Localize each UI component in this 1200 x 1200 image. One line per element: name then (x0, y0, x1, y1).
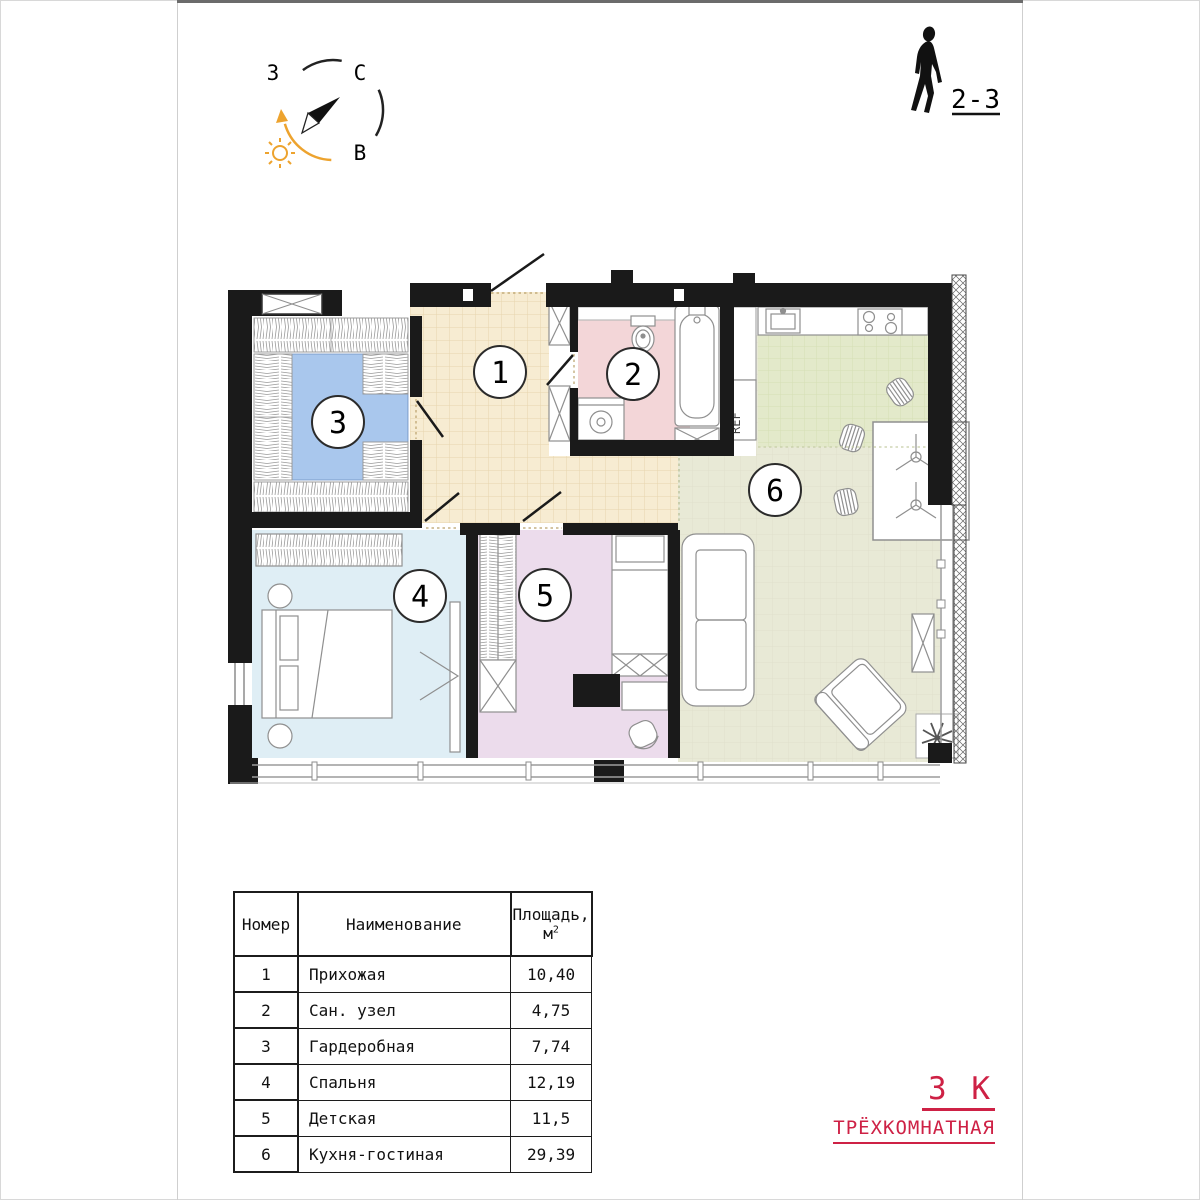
cell-area: 11,5 (511, 1100, 592, 1136)
cell-number: 5 (234, 1100, 298, 1136)
cell-number: 2 (234, 992, 298, 1028)
compass-north-label: С (354, 61, 367, 85)
sheet-top-edge (177, 0, 1023, 3)
cell-area: 10,40 (511, 956, 592, 992)
cell-number: 1 (234, 956, 298, 992)
svg-text:4: 4 (411, 580, 429, 615)
area-table: Номер Наименование Площадь, м2 1Прихожая… (233, 891, 593, 1173)
tv-unit (450, 602, 460, 752)
col-header-name: Наименование (298, 892, 511, 956)
cell-number: 3 (234, 1028, 298, 1064)
apartment-type-code: 3 К (922, 1072, 995, 1111)
svg-text:5: 5 (536, 579, 554, 614)
table-row: 5Детская11,5 (234, 1100, 592, 1136)
sheet-left-edge (177, 0, 178, 1200)
col-header-number: Номер (234, 892, 298, 956)
compass-rose: З С В (235, 30, 405, 190)
cell-area: 4,75 (511, 992, 592, 1028)
toilet (631, 316, 655, 352)
window-band-south (230, 762, 940, 783)
bathtub (675, 306, 719, 426)
compass-east-label: В (354, 141, 367, 165)
cell-name: Спальня (298, 1064, 511, 1100)
floor-plan: REF (228, 262, 988, 797)
room-number-6: 6 (749, 464, 801, 516)
room-number-4: 4 (394, 570, 446, 622)
floorplan-sheet: { "header": { "floors_label": "2-3" }, "… (0, 0, 1200, 1200)
facade-hatch (952, 275, 966, 763)
bed-drawer (612, 654, 668, 676)
table-row: 4Спальня12,19 (234, 1064, 592, 1100)
sheet-right-edge (1022, 0, 1023, 1200)
cell-name: Гардеробная (298, 1028, 511, 1064)
compass-west-label: З (267, 61, 280, 85)
desk (622, 682, 668, 710)
bath-door-leaf (547, 355, 573, 385)
cell-area: 12,19 (511, 1064, 592, 1100)
floors-label: 2-3 (951, 85, 1001, 115)
cell-area: 29,39 (511, 1136, 592, 1172)
table-row: 6Кухня-гостиная29,39 (234, 1136, 592, 1172)
floors-badge: 2-3 (900, 24, 1010, 119)
compass-arc-right (376, 90, 383, 136)
cell-area: 7,74 (511, 1028, 592, 1064)
apartment-type-name: ТРЁХКОМНАТНАЯ (833, 1118, 995, 1144)
nightstand (268, 584, 292, 608)
svg-text:1: 1 (491, 356, 509, 391)
left-window (228, 663, 252, 705)
person-icon (911, 25, 942, 113)
area-table-header: Номер Наименование Площадь, м2 (234, 892, 592, 956)
svg-text:6: 6 (766, 474, 784, 509)
entry-door-leaf (491, 254, 544, 291)
cell-number: 6 (234, 1136, 298, 1172)
cell-name: Кухня-гостиная (298, 1136, 511, 1172)
sofa (682, 534, 754, 706)
svg-text:2: 2 (624, 358, 642, 393)
table-row: 1Прихожая10,40 (234, 956, 592, 992)
nightstand (268, 724, 292, 748)
table-row: 2Сан. узел4,75 (234, 992, 592, 1028)
svg-text:3: 3 (329, 406, 347, 441)
room-number-2: 2 (607, 348, 659, 400)
area-table-body: 1Прихожая10,402Сан. узел4,753Гардеробная… (234, 956, 592, 1172)
cell-name: Детская (298, 1100, 511, 1136)
room-number-5: 5 (519, 569, 571, 621)
bath-counter (578, 398, 624, 440)
col-header-area: Площадь, м2 (511, 892, 592, 956)
compass-arc-top (303, 60, 342, 70)
sun-arrow-icon (276, 109, 288, 123)
cell-number: 4 (234, 1064, 298, 1100)
sun-icon (265, 138, 295, 168)
cell-name: Прихожая (298, 956, 511, 992)
table-row: 3Гардеробная7,74 (234, 1028, 592, 1064)
room-number-3: 3 (312, 396, 364, 448)
cell-name: Сан. узел (298, 992, 511, 1028)
room-number-1: 1 (474, 346, 526, 398)
apartment-type-label: 3 К ТРЁХКОМНАТНАЯ (833, 1072, 995, 1144)
